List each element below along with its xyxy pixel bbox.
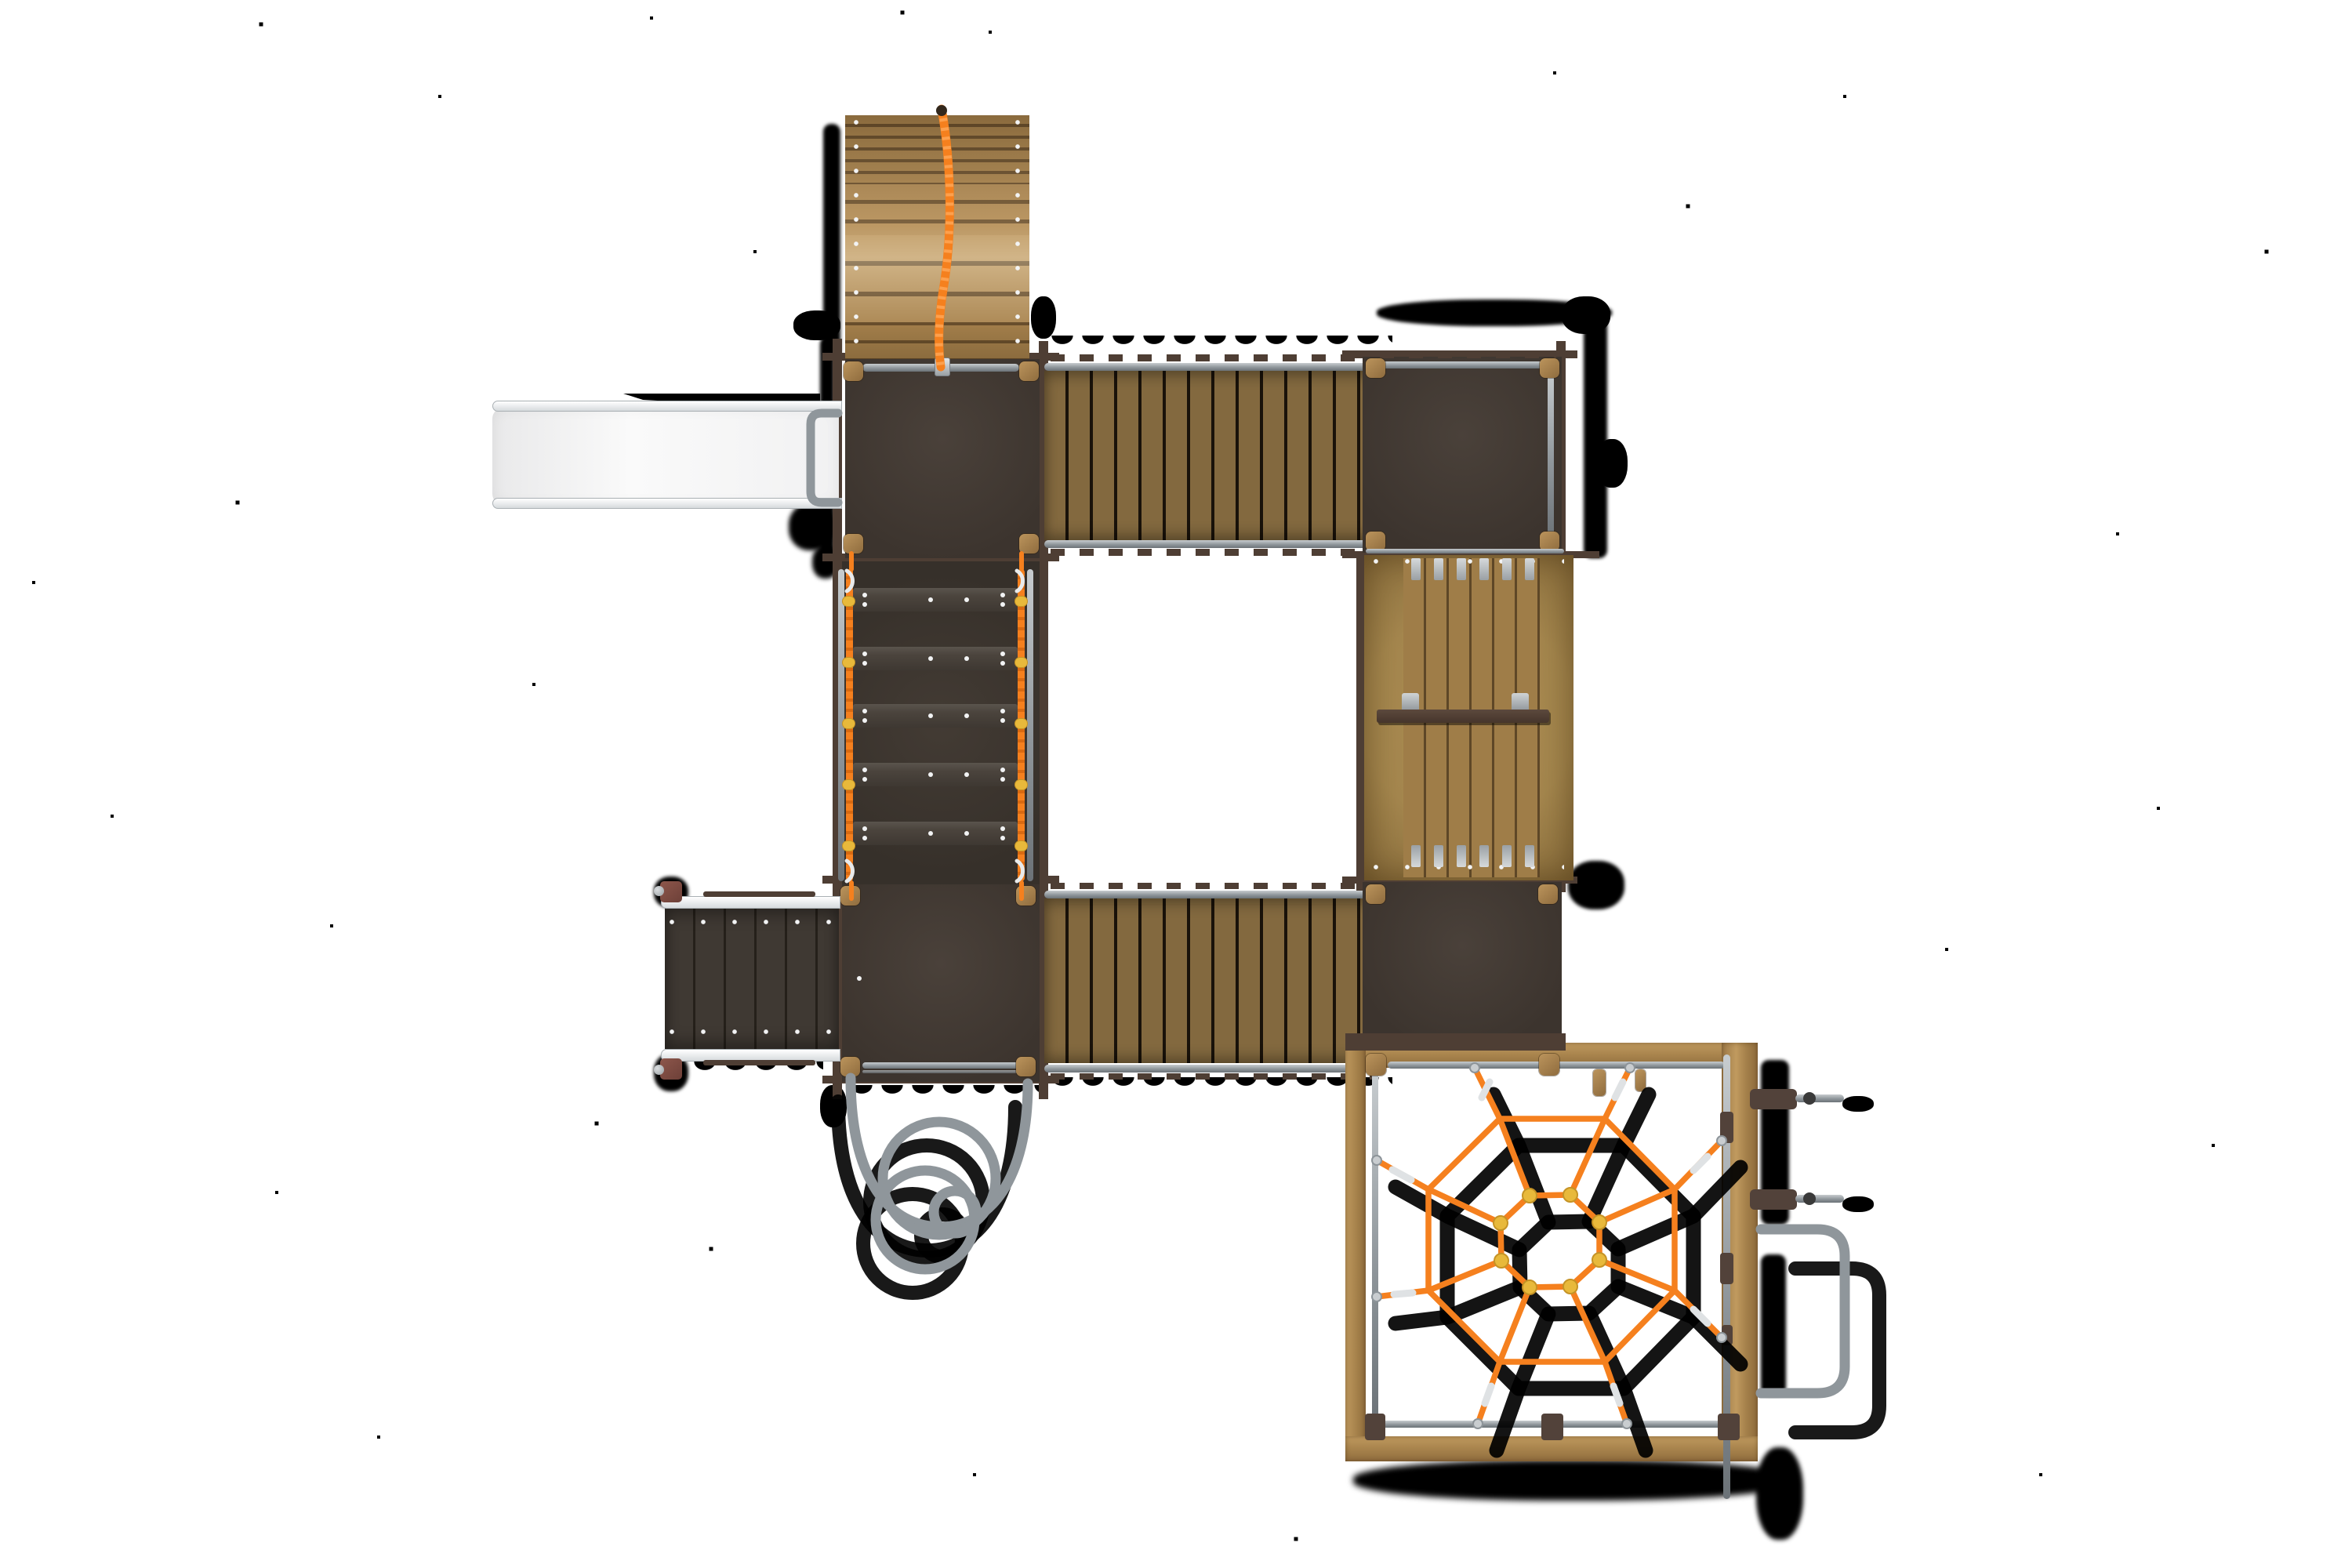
upper-bridge-rail-bottom	[1044, 540, 1377, 548]
rope-knot	[843, 719, 855, 728]
loop-climber-shadow	[838, 1102, 1015, 1293]
peg-step-bar	[1750, 1189, 1797, 1210]
peg-step-knob	[1803, 1192, 1816, 1205]
lower-bridge-rail-bottom	[1044, 1065, 1377, 1073]
spider-web-shadow	[1396, 1094, 1740, 1450]
frame-pad	[1541, 1414, 1563, 1440]
rope-knot	[1015, 841, 1027, 851]
ramp-bracket	[1502, 558, 1512, 580]
post-cap	[840, 1057, 860, 1076]
shadow-peg-2	[1842, 1196, 1874, 1212]
timber-ramp-top-rod	[1366, 549, 1564, 554]
platform-fence-board	[1345, 1033, 1566, 1051]
ramp-bracket	[1502, 845, 1512, 867]
step-screws	[862, 652, 867, 656]
lower-left-rail	[862, 1062, 1019, 1069]
step-board	[853, 822, 1018, 845]
post-cap	[840, 886, 860, 906]
shadow-upper-right-col	[1584, 304, 1607, 558]
lower-left-platform	[842, 884, 1040, 1082]
lower-bridge-rail-top	[1044, 891, 1377, 898]
deck-screw	[857, 976, 862, 981]
post-cap	[1540, 358, 1559, 378]
side-ramp-screws-top	[668, 919, 836, 925]
ramp-bolt	[654, 886, 664, 896]
shadow-peg-1	[1842, 1096, 1874, 1112]
step-screws	[862, 593, 867, 597]
side-ramp-bar-bottom	[703, 1060, 815, 1065]
frame-peg	[1635, 1069, 1646, 1091]
ramp-bracket	[1434, 845, 1443, 867]
ramp-bracket	[1479, 845, 1489, 867]
shadow-frame-right-3	[1756, 1447, 1803, 1540]
post-cap	[844, 534, 863, 554]
post-cap	[1016, 886, 1036, 906]
side-ramp-rail-top	[661, 896, 840, 909]
rope-knot	[1015, 597, 1027, 606]
render-speckles	[0, 0, 2, 2]
web-frame-left-rod	[1372, 1071, 1378, 1425]
rope-knot	[1015, 658, 1027, 667]
post-cap	[1366, 1054, 1386, 1076]
upper-bridge-posts-top	[1051, 354, 1377, 361]
upper-bridge-rail-top	[1044, 363, 1377, 371]
rod-clamp	[1720, 1253, 1733, 1284]
shadow-lower-left-bottom	[847, 1085, 1043, 1107]
step-screws	[862, 768, 867, 772]
post-cap	[844, 361, 863, 381]
grab-handle-shadow	[1795, 1269, 1879, 1432]
post-cap	[1016, 1057, 1036, 1076]
arch-screws-right	[1014, 118, 1021, 358]
rope-clamp	[935, 358, 950, 376]
lower-right-platform	[1363, 882, 1562, 1041]
rope-top-knot	[936, 105, 947, 116]
upper-right-rail-side	[1548, 368, 1554, 543]
timber-ramp-screws-bottom	[1372, 864, 1564, 870]
arch-climber	[845, 115, 1029, 361]
rod-clamp	[1722, 1325, 1733, 1345]
rod-clamp	[1720, 1112, 1733, 1143]
rope-knot	[843, 780, 855, 789]
rope-knot	[1015, 780, 1027, 789]
rope-knot	[1015, 719, 1027, 728]
step-board	[853, 647, 1018, 670]
shadow-lower-bridge-fence	[1047, 1077, 1392, 1102]
ramp-bolt	[654, 1065, 664, 1075]
shadow-frame-right-2	[1761, 1254, 1786, 1396]
spider-web	[1372, 1063, 1726, 1428]
arch-shading	[845, 115, 1029, 361]
playground-render-scene	[0, 0, 2352, 1568]
frame-pad	[1718, 1414, 1740, 1440]
slide	[492, 408, 839, 505]
step-ramp-rail-right	[1027, 569, 1033, 881]
side-ramp-bar-top	[703, 891, 815, 897]
side-ramp-screws-bottom	[668, 1029, 836, 1035]
lower-bridge-posts-top	[1051, 883, 1377, 889]
post-cap	[1019, 361, 1039, 381]
shadow-platform-left-top	[793, 310, 840, 340]
peg-step-knob	[1803, 1092, 1816, 1105]
upper-right-platform	[1363, 357, 1562, 553]
lower-bridge-posts-bottom	[1051, 1073, 1377, 1080]
ramp-grab-bar	[1377, 710, 1549, 723]
shadow-slide-bottom	[789, 503, 834, 550]
web-frame-left-beam	[1345, 1043, 1366, 1460]
frame-pad	[1365, 1414, 1385, 1440]
step-board	[853, 763, 1018, 786]
arch-screws-left	[853, 118, 859, 358]
ramp-bracket	[1434, 558, 1443, 580]
ramp-bracket	[1457, 558, 1466, 580]
step-board	[853, 704, 1018, 728]
ramp-bracket	[1479, 558, 1489, 580]
post-cap	[1366, 884, 1385, 904]
frame-peg	[1593, 1069, 1606, 1096]
step-board	[853, 588, 1018, 612]
side-ramp	[665, 908, 839, 1049]
lower-bridge	[1044, 898, 1377, 1063]
ramp-bracket	[1525, 558, 1534, 580]
rope-knot	[843, 658, 855, 667]
post-cap	[1539, 1054, 1559, 1076]
rope-knot	[843, 597, 855, 606]
post-cap	[1366, 358, 1385, 378]
upper-left-platform	[845, 359, 1040, 558]
ramp-bracket	[1411, 558, 1421, 580]
shadow-lower-right-corner	[1568, 861, 1624, 909]
timber-ramp-screws-top	[1372, 558, 1564, 564]
post-cap	[1019, 534, 1039, 554]
slide-rail-top	[492, 401, 842, 412]
post-cap	[1538, 884, 1558, 904]
upper-right-rail	[1380, 361, 1556, 368]
step-screws	[862, 709, 867, 713]
lower-left-rail2	[862, 1070, 1019, 1073]
upper-right-posts	[1380, 352, 1556, 358]
slide-rail-bottom	[492, 498, 842, 509]
ramp-bracket	[1457, 845, 1466, 867]
step-screws	[862, 826, 867, 831]
ramp-bracket	[1525, 845, 1534, 867]
ramp-bracket	[1411, 845, 1421, 867]
rope-knot	[843, 841, 855, 851]
rope-and-tube-overlay	[0, 0, 2352, 1568]
shadow-arch-right	[1031, 296, 1056, 339]
shadow-upper-right-col-blob	[1596, 439, 1628, 488]
peg-step-bar	[1750, 1089, 1797, 1109]
upper-bridge-posts-bottom	[1051, 549, 1377, 556]
upper-bridge	[1044, 371, 1377, 540]
